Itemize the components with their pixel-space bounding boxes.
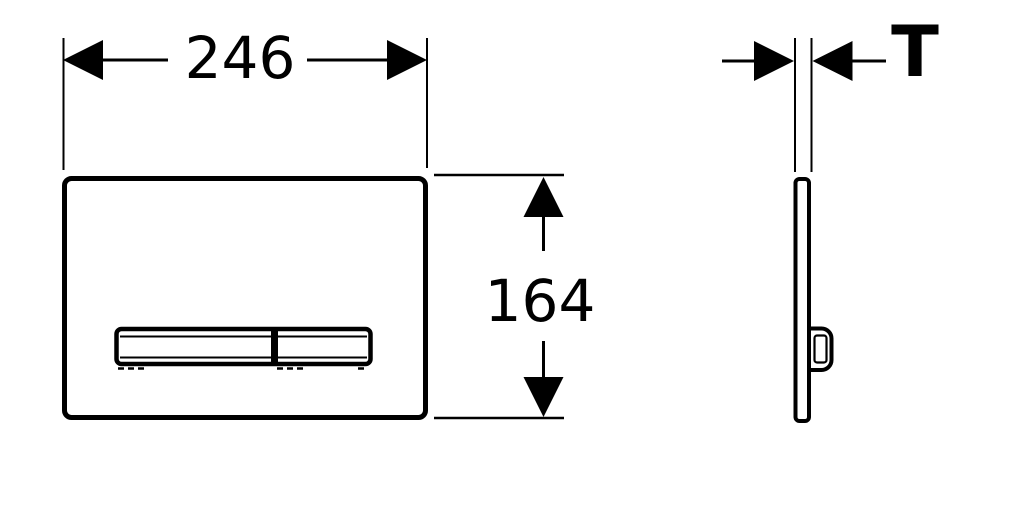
thickness-arrow-left-icon bbox=[813, 41, 853, 81]
thickness-arrow-right-icon bbox=[754, 41, 794, 81]
thickness-dimension: T bbox=[722, 11, 939, 172]
height-arrow-up-icon bbox=[524, 177, 564, 217]
height-dimension-label: 164 bbox=[485, 267, 596, 335]
actuator-button-panel bbox=[117, 329, 371, 369]
plate-outline bbox=[65, 179, 426, 418]
thickness-dimension-label: T bbox=[891, 11, 939, 93]
button-panel-outline bbox=[117, 329, 371, 364]
drawing-canvas: 246 164 T bbox=[0, 0, 1024, 525]
side-profile-outline bbox=[796, 179, 810, 421]
width-dimension: 246 bbox=[63, 24, 427, 170]
height-arrow-down-icon bbox=[524, 377, 564, 417]
width-arrow-left-icon bbox=[63, 40, 103, 80]
width-arrow-right-icon bbox=[387, 40, 427, 80]
width-dimension-label: 246 bbox=[185, 24, 296, 92]
technical-drawing: 246 164 T bbox=[0, 0, 1024, 525]
button-profile-inner-face bbox=[815, 336, 827, 363]
side-view bbox=[796, 179, 832, 421]
front-view bbox=[65, 179, 426, 418]
height-dimension: 164 bbox=[434, 175, 595, 418]
